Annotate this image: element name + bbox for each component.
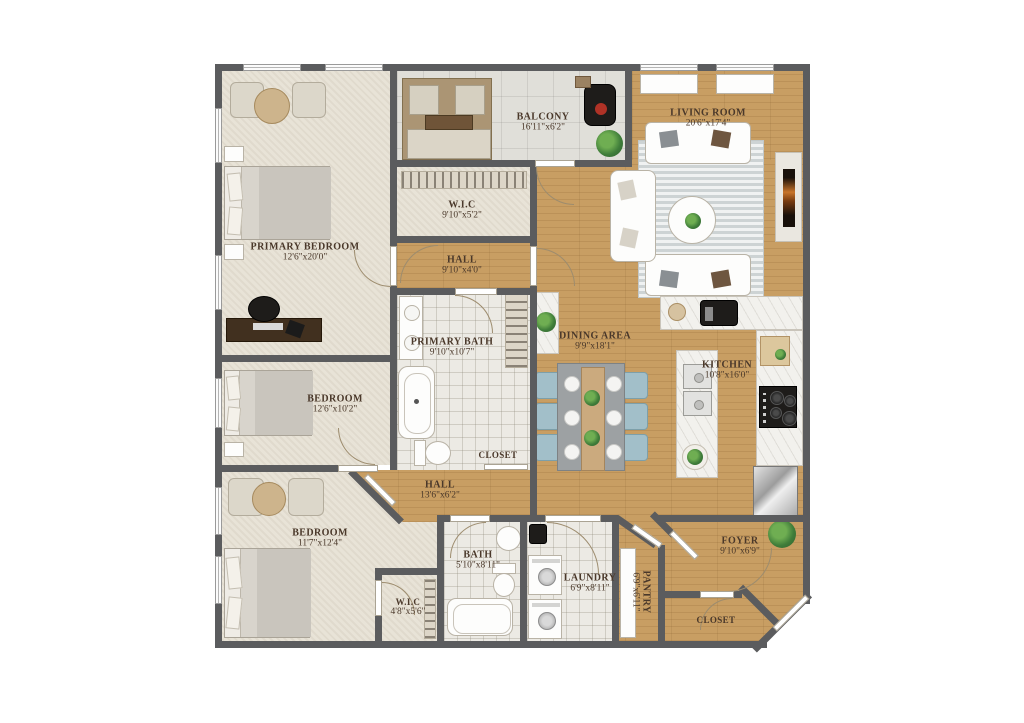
- room-dims: 4'8"x5'6": [391, 607, 426, 617]
- label-hall-top: HALL 9'10"x4'0": [442, 255, 482, 276]
- refrigerator: [753, 466, 798, 518]
- desk: [226, 318, 322, 342]
- label-primary-bedroom: PRIMARY BEDROOM 12'6"x20'0": [251, 242, 360, 263]
- label-closet-br: CLOSET: [697, 615, 736, 625]
- wall: [215, 355, 397, 362]
- room-dims: 11'7"x12'4": [292, 539, 348, 549]
- wall: [520, 522, 527, 641]
- room-name: BEDROOM: [292, 528, 348, 539]
- floor-plan-canvas: PRIMARY BEDROOM 12'6"x20'0" BALCONY 16'1…: [0, 0, 1024, 723]
- room-name: W.I.C: [442, 200, 482, 211]
- door-closet-br: [700, 591, 734, 598]
- island-sink-module: [683, 391, 712, 416]
- dining-chair: [622, 372, 648, 399]
- coffee-table: [668, 196, 716, 244]
- nightstand: [224, 244, 244, 260]
- label-laundry: LAUNDRY 6'9"x8'11": [564, 573, 616, 594]
- door-balcony: [535, 160, 575, 167]
- window: [215, 378, 222, 428]
- room-name: DINING AREA: [559, 331, 631, 342]
- dining-chair: [622, 434, 648, 461]
- cutting-board: [760, 336, 790, 366]
- label-wic-bottom: W.I.C 4'8"x5'6": [391, 597, 426, 617]
- window: [325, 64, 383, 71]
- label-pantry: PANTRY 6'9"x6'11": [631, 571, 652, 614]
- primary-bed: [224, 166, 330, 240]
- bath-sink: [496, 526, 521, 551]
- side-table: [252, 482, 286, 516]
- wall: [658, 515, 803, 522]
- door-wic-bottom: [375, 580, 382, 616]
- window: [243, 64, 301, 71]
- foyer-plant: [768, 520, 796, 548]
- bathtub: [398, 366, 435, 439]
- room-dims: 9'9"x18'1": [559, 342, 631, 352]
- door-hall-dining: [530, 246, 537, 286]
- room-name: W.I.C: [391, 597, 426, 607]
- room-name: HALL: [420, 480, 460, 491]
- wall: [437, 522, 444, 641]
- room-name: LIVING ROOM: [670, 108, 746, 119]
- laundry-sink: [529, 524, 547, 544]
- window: [215, 556, 222, 604]
- room-name: BATH: [456, 550, 500, 561]
- window-seat: [716, 74, 774, 94]
- room-dims: 13'6"x6'2": [420, 491, 460, 501]
- balcony-sofa: [402, 78, 492, 160]
- armchair: [288, 478, 324, 516]
- dining-table: [557, 363, 625, 471]
- room-dims: 9'10"x6'9": [720, 547, 760, 557]
- window-seat: [640, 74, 698, 94]
- room-dims: 20'6"x17'4": [670, 119, 746, 129]
- room-name: PRIMARY BEDROOM: [251, 242, 360, 253]
- room-dims: 6'9"x8'11": [564, 584, 616, 594]
- side-table: [254, 88, 290, 124]
- room-dims: 12'6"x10'2": [307, 405, 363, 415]
- label-closet-mid: CLOSET: [479, 450, 518, 460]
- door-bath: [450, 515, 490, 522]
- room-dims: 12'6"x20'0": [251, 253, 360, 263]
- fireplace: [775, 152, 802, 242]
- grill: [584, 84, 616, 126]
- balcony-plant: [596, 130, 623, 157]
- label-balcony: BALCONY 16'11"x6'2": [517, 112, 570, 133]
- label-kitchen: KITCHEN 10'8"x16'0": [702, 360, 752, 381]
- wall-outer-right: [803, 64, 810, 604]
- room-dims: 9'10"x10'7": [411, 348, 494, 358]
- closet-rack: [424, 579, 436, 639]
- room-dims: 5'10"x8'11": [456, 561, 500, 571]
- window: [215, 255, 222, 310]
- room-dims: 9'10"x4'0": [442, 266, 482, 276]
- window: [640, 64, 698, 71]
- bed: [224, 370, 312, 436]
- door-bedroom-mid: [338, 465, 378, 472]
- vegetable-bowl: [682, 444, 708, 470]
- bed: [224, 548, 310, 638]
- closet-rack: [401, 171, 527, 189]
- counter-plant: [536, 312, 556, 332]
- room-name: BEDROOM: [307, 394, 363, 405]
- label-bedroom-mid: BEDROOM 12'6"x10'2": [307, 394, 363, 415]
- room-name: PANTRY: [641, 571, 652, 614]
- closet-door: [484, 464, 528, 470]
- room-dims: 16'11"x6'2": [517, 123, 570, 133]
- wall: [530, 160, 537, 522]
- bowl: [668, 303, 686, 321]
- coffee-machine: [700, 300, 738, 326]
- window: [215, 487, 222, 535]
- label-primary-bath: PRIMARY BATH 9'10"x10'7": [411, 337, 494, 358]
- wall: [375, 568, 437, 575]
- room-name: LAUNDRY: [564, 573, 616, 584]
- toilet: [414, 438, 452, 466]
- label-bedroom-bottom: BEDROOM 11'7"x12'4": [292, 528, 348, 549]
- nightstand: [224, 146, 244, 162]
- door-primary-bath: [455, 288, 497, 295]
- cooktop: [759, 386, 797, 428]
- room-name: KITCHEN: [702, 360, 752, 371]
- desk-chair: [248, 296, 280, 322]
- room-name: BALCONY: [517, 112, 570, 123]
- window: [716, 64, 774, 71]
- dryer: [528, 599, 562, 639]
- door-laundry: [545, 515, 601, 522]
- label-bath: BATH 5'10"x8'11": [456, 550, 500, 571]
- label-foyer: FOYER 9'10"x6'9": [720, 536, 760, 557]
- room-dims: 6'9"x6'11": [631, 571, 641, 614]
- loveseat: [610, 170, 656, 262]
- nightstand: [224, 442, 244, 457]
- balcony-side-table: [575, 76, 591, 88]
- label-hall-lower: HALL 13'6"x6'2": [420, 480, 460, 501]
- label-dining-area: DINING AREA 9'9"x18'1": [559, 331, 631, 352]
- armchair: [292, 82, 326, 118]
- shower: [505, 291, 528, 368]
- room-name: PRIMARY BATH: [411, 337, 494, 348]
- room-dims: 10'8"x16'0": [702, 371, 752, 381]
- window: [215, 108, 222, 163]
- room-name: CLOSET: [697, 615, 736, 625]
- room-name: CLOSET: [479, 450, 518, 460]
- bathtub: [447, 598, 513, 636]
- wall: [397, 236, 530, 243]
- wall: [625, 64, 632, 167]
- sofa: [645, 254, 751, 296]
- room-dims: 9'10"x5'2": [442, 211, 482, 221]
- label-wic-top: W.I.C 9'10"x5'2": [442, 200, 482, 221]
- wall-outer-bottom: [215, 641, 767, 648]
- room-name: HALL: [442, 255, 482, 266]
- wall: [390, 160, 632, 167]
- room-name: FOYER: [720, 536, 760, 547]
- dining-chair: [622, 403, 648, 430]
- label-living-room: LIVING ROOM 20'6"x17'4": [670, 108, 746, 129]
- door-primary-bedroom: [390, 246, 397, 286]
